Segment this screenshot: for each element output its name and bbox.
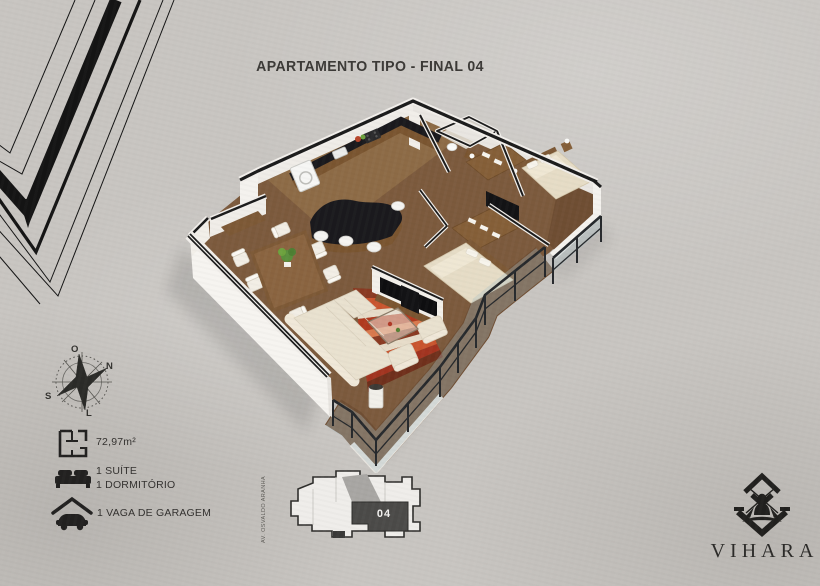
legend-dormitory: 1 DORMITÓRIO (96, 479, 175, 491)
balcony-planter (369, 384, 383, 408)
compass-label-south: S (45, 391, 51, 402)
floorplan-render (166, 101, 612, 470)
compass-label-east: L (86, 408, 92, 419)
floorplan-icon (60, 431, 86, 456)
toilet (447, 143, 457, 151)
compass-label-north: N (106, 361, 113, 372)
page-title: APARTAMENTO TIPO - FINAL 04 (191, 58, 548, 75)
keyplan-entry-notch (333, 531, 345, 538)
legend-area-value: 72,97m² (96, 436, 136, 448)
legend-icons (53, 431, 91, 530)
fruit-bowl (355, 136, 361, 142)
marketing-sheet: APARTAMENTO TIPO - FINAL 04 O N S L 72,9… (0, 0, 820, 586)
legend-suite: 1 SUÍTE (96, 465, 137, 477)
garage-icon (53, 499, 91, 530)
brand-logo-icon (734, 476, 790, 533)
compass-rose (52, 352, 112, 412)
keyplan (291, 471, 420, 538)
brand-name: VIHARA (702, 540, 820, 563)
keyplan-unit-label: 04 (369, 508, 399, 520)
compass-label-west: O (71, 344, 78, 355)
chevron-pattern-decor (0, 0, 174, 304)
legend-garage: 1 VAGA DE GARAGEM (97, 507, 211, 519)
keyplan-street-label: AV. OSVALDO ARANHA (261, 465, 267, 543)
bed-icon (55, 470, 91, 488)
artwork (0, 0, 820, 586)
